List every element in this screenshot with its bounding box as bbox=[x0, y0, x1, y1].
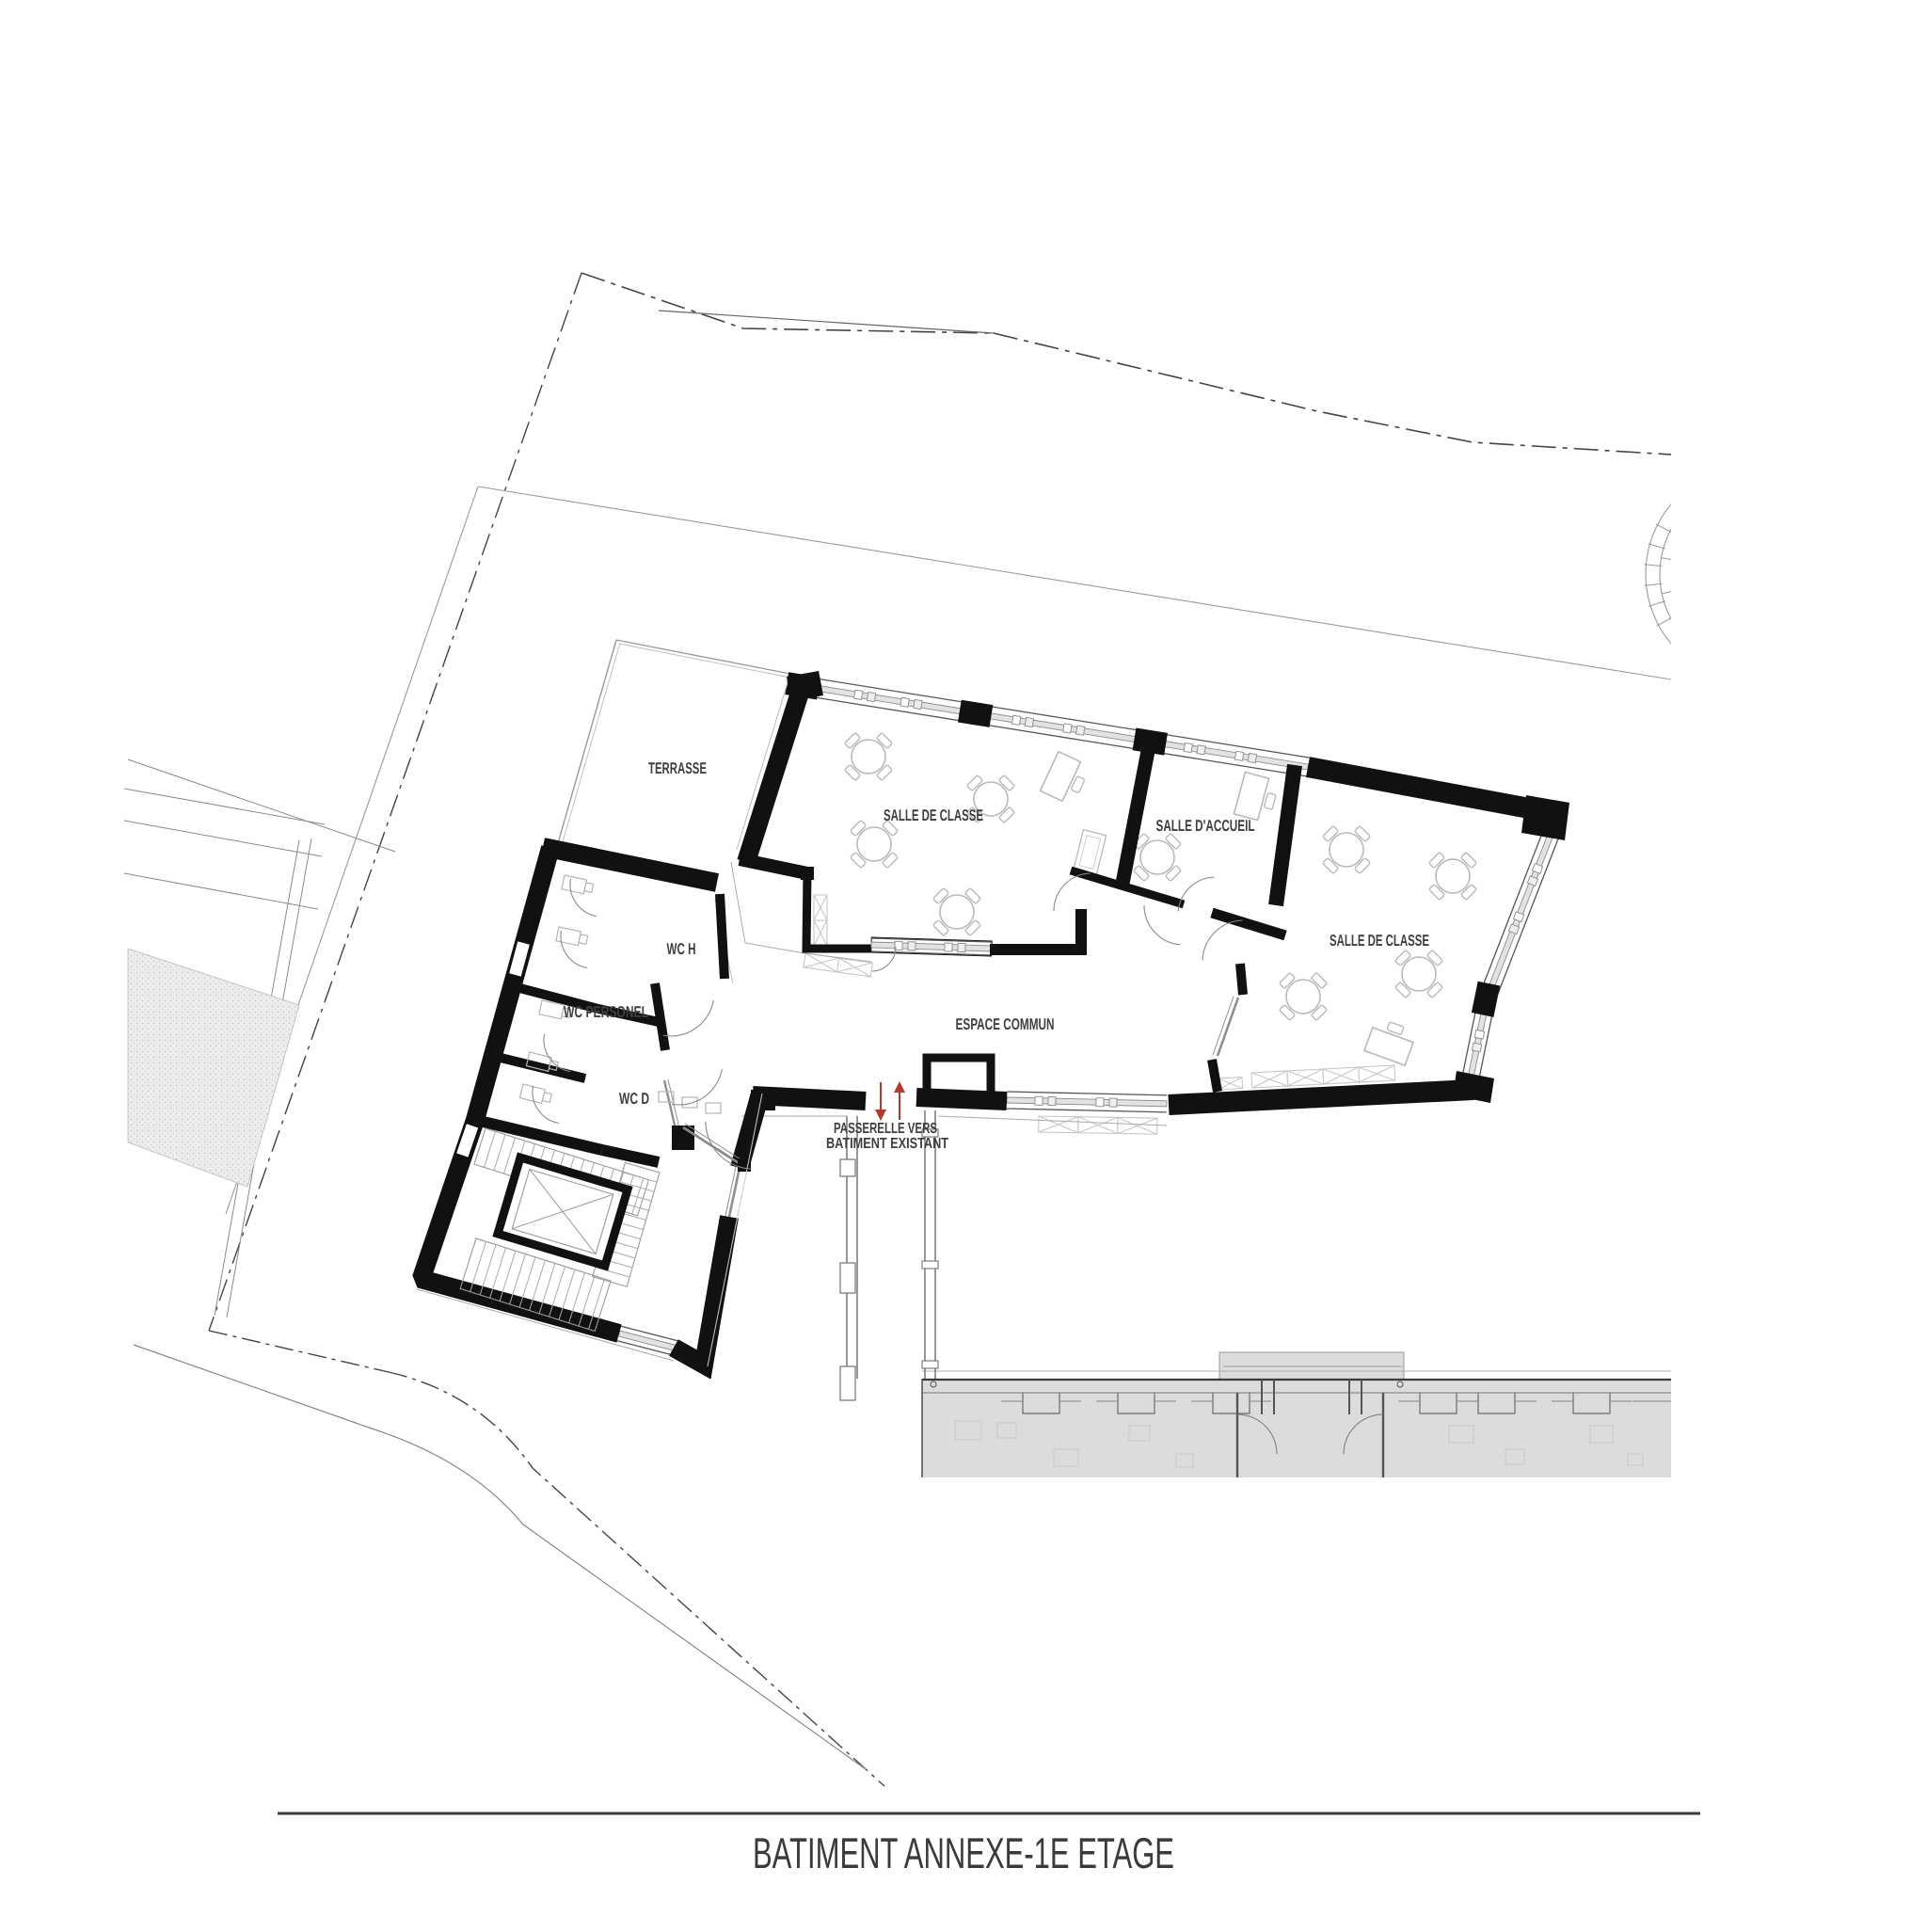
svg-text:SALLE DE CLASSE: SALLE DE CLASSE bbox=[1330, 932, 1429, 950]
svg-text:SALLE D'ACCUEIL: SALLE D'ACCUEIL bbox=[1156, 817, 1255, 835]
svg-text:ESPACE COMMUN: ESPACE COMMUN bbox=[956, 1015, 1055, 1033]
svg-text:SALLE DE CLASSE: SALLE DE CLASSE bbox=[884, 806, 983, 824]
svg-text:BATIMENT ANNEXE-1E ETAGE: BATIMENT ANNEXE-1E ETAGE bbox=[753, 1828, 1174, 1877]
svg-text:PASSERELLE VERS: PASSERELLE VERS bbox=[834, 1121, 937, 1137]
svg-text:WC D: WC D bbox=[619, 1090, 649, 1108]
svg-text:TERRASSE: TERRASSE bbox=[648, 759, 707, 777]
svg-text:WC H: WC H bbox=[667, 940, 696, 958]
svg-text:WC PERSONEL: WC PERSONEL bbox=[564, 1003, 648, 1021]
svg-text:BATIMENT EXISTANT: BATIMENT EXISTANT bbox=[826, 1136, 948, 1152]
